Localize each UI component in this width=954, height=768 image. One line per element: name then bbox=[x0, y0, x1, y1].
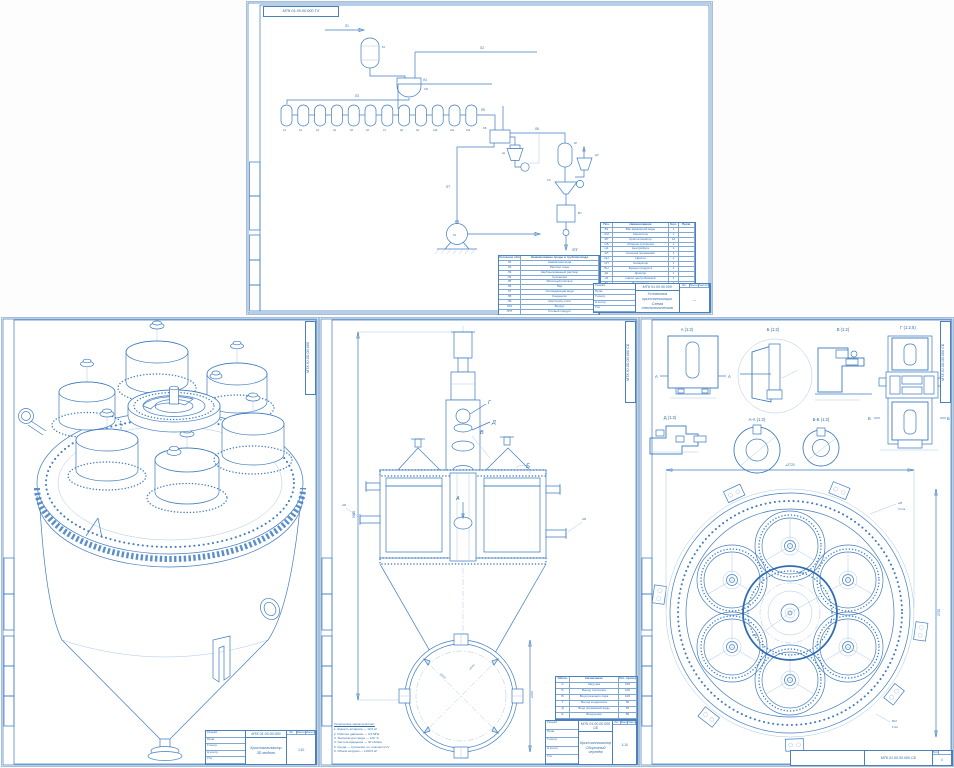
holes-count: 72 отв. bbox=[898, 508, 906, 511]
revision-cells bbox=[791, 751, 865, 765]
svg-text:А4: А4 bbox=[333, 129, 337, 132]
crystallizer-front-view: Г Д В bbox=[342, 326, 587, 758]
collector-box-icon bbox=[490, 130, 510, 143]
edge-document-code: МТК 01.00.00.000 СБ bbox=[625, 321, 636, 403]
separator-icon bbox=[555, 182, 577, 194]
nozzle-dim-right: ⌀50 bbox=[582, 518, 587, 521]
title-block-title: Установка кристаллизации Схема технологи… bbox=[636, 291, 679, 312]
sheet-flow-diagram: Л1 Л2 Л3 Л4 Л5 Л6 ЛТ ЛПГ Б1 СМ СБ Ц1 КЛ … bbox=[247, 2, 712, 314]
process-flow-diagram: Л1 Л2 Л3 Л4 Л5 Л6 ЛТ ЛПГ Б1 СМ СБ Ц1 КЛ … bbox=[281, 24, 599, 254]
technical-notes: Технические характеристики: 1. Ёмкость а… bbox=[334, 722, 454, 753]
title-block: Разраб.Пров.Т.контр.Н.контр.Утв. МТК 01.… bbox=[593, 283, 711, 313]
drum-1 bbox=[118, 321, 196, 402]
svg-text:А12: А12 bbox=[466, 129, 471, 132]
drum-5 bbox=[147, 429, 227, 513]
title-block-info: Лит.МассаМасштаб 1:10 bbox=[287, 731, 316, 764]
ring-dim: ⌀920 bbox=[752, 634, 758, 637]
stream-label-l6: Л6 bbox=[535, 127, 539, 131]
crystallizer-row bbox=[281, 105, 477, 126]
svg-text:А10: А10 bbox=[433, 129, 438, 132]
title-block-roles: Разраб.Пров.Т.контр.Н.контр.Утв. bbox=[546, 721, 579, 764]
svg-text:А2: А2 bbox=[299, 129, 303, 132]
title-block-roles: Разраб.Пров.Т.контр.Н.контр.Утв. bbox=[594, 284, 636, 312]
stream-label-lpg: ЛПГ bbox=[572, 248, 578, 252]
title-block-info: Лит.МассаМасштаб 1:10 bbox=[613, 721, 637, 764]
detail-view-b bbox=[738, 339, 812, 413]
section-mark-b-left: Б bbox=[868, 416, 871, 421]
cover-plan-view bbox=[652, 469, 937, 751]
view-letter-v: В bbox=[480, 430, 484, 436]
detail-view-d bbox=[650, 426, 706, 454]
edge-document-code: МТК 01.00.00.000 bbox=[305, 321, 316, 395]
svg-text:А1: А1 bbox=[283, 129, 287, 132]
title-block-code: МТК 01.00.00.000 СБ bbox=[865, 751, 932, 765]
edge-document-code: МТК 01.00.00.000 СБ bbox=[940, 321, 951, 403]
corner-document-code: МТК 01.00.00.000 ТХ bbox=[263, 6, 339, 17]
drawing-workspace: Л1 Л2 Л3 Л4 Л5 Л6 ЛТ ЛПГ Б1 СМ СБ Ц1 КЛ … bbox=[0, 0, 954, 768]
stream-label-l5: Л5 bbox=[481, 108, 485, 112]
detail-g-label: Г (1:2.5) bbox=[900, 325, 916, 330]
sight-port-icon bbox=[257, 595, 284, 623]
svg-text:А7: А7 bbox=[383, 129, 387, 132]
eq-label-collector: СБ bbox=[483, 127, 487, 130]
title-block-title: Кристаллизатор Сборочный чертёж bbox=[579, 732, 613, 764]
sheet-iso-view: МТК 01.00.00.000 Разраб.Пров.Т.контр.Н.к… bbox=[2, 318, 318, 766]
stream-label-l1: Л1 bbox=[345, 24, 349, 28]
plan-dim-right: 2720 bbox=[937, 609, 941, 616]
svg-text:А6: А6 bbox=[366, 129, 370, 132]
sheet-number-cell: Лист 4 bbox=[933, 751, 952, 765]
section-view-bb bbox=[803, 428, 839, 466]
stream-label-l2: Л2 bbox=[480, 46, 484, 50]
eq-label-cyclone: Ц1 bbox=[502, 152, 506, 155]
detail-b-label: Б (1:2) bbox=[767, 327, 780, 332]
section-view-aa bbox=[734, 425, 780, 473]
section-mark-a-left: А bbox=[655, 374, 658, 379]
continuation-title-block: МТК 01.00.00.000 СБ Лист 4 bbox=[790, 750, 953, 766]
view-letter-d: Д bbox=[491, 420, 496, 426]
svg-text:А9: А9 bbox=[416, 129, 420, 132]
lug-left bbox=[86, 518, 102, 538]
detail-view-v bbox=[815, 348, 872, 400]
drive-assembly bbox=[446, 332, 490, 488]
plan-height-dim: ⌀2720 bbox=[531, 691, 534, 698]
pump-icon bbox=[435, 224, 540, 255]
feed-tank-icon bbox=[361, 38, 379, 68]
view-letter-g: Г bbox=[488, 400, 492, 406]
legend-table: Условное обозначениеНаименование среды в… bbox=[498, 255, 600, 315]
svg-text:А11: А11 bbox=[450, 129, 455, 132]
equipment-table: Поз.НаименованиеКол.Прим. Б1Бак аммиачно… bbox=[600, 222, 696, 284]
nozzle-table: Обозн.НазначениеУсл. проход АЗагрузка150… bbox=[555, 676, 638, 720]
cyclone-icon bbox=[507, 145, 529, 171]
crystallizer-iso-drawing bbox=[19, 321, 304, 761]
title-block: Разраб.Пров.Т.контр.Н.контр.Утв. МТК 01.… bbox=[205, 730, 317, 765]
view-letter-a: А bbox=[455, 496, 460, 502]
view-letter-b: Б bbox=[526, 464, 530, 470]
title-block-code: МТК 01.00.00.000 bbox=[246, 731, 287, 738]
height-dim-label: 5960 bbox=[352, 511, 356, 518]
eq-label-column: КЛ bbox=[574, 142, 577, 145]
title-block-title: Кристаллизатор 3D модель bbox=[246, 738, 287, 764]
bunker-icon bbox=[557, 205, 575, 222]
section-aa-label: А-А (1:2) bbox=[749, 417, 766, 422]
bolts-dim: М24 bbox=[892, 720, 897, 723]
eq-label-separator: СП bbox=[547, 179, 551, 182]
detail-a-label: А (1:2) bbox=[681, 327, 694, 332]
drum-opening-bottom bbox=[755, 645, 825, 715]
stream-label-l3: Л3 bbox=[355, 94, 359, 98]
section-mark-a-right: А bbox=[728, 374, 731, 379]
cyclone2-icon bbox=[575, 147, 592, 188]
eq-label-bunker: БН bbox=[578, 212, 582, 215]
detail-v-label: В (1:2) bbox=[837, 327, 850, 332]
vessel-position-labels: А1 А2 А3 А4 А5 А6 А7 А8 А9 А10 А11 А12 bbox=[283, 129, 471, 132]
holes-dim: ⌀25 bbox=[898, 502, 903, 505]
title-block: Разраб.Пров.Т.контр.Н.контр.Утв. МТК 01.… bbox=[545, 720, 638, 765]
detail-d-label: Д (1:2) bbox=[664, 415, 677, 420]
title-block-code: МТК 01.00.00.000 bbox=[636, 284, 679, 291]
sheet-front-view: Г Д В bbox=[320, 318, 638, 766]
stream-label-lt: ЛТ bbox=[446, 185, 450, 189]
details-svg: А (1:2) А А Б (1:2) bbox=[640, 318, 953, 766]
bolts-count: 6 отв. bbox=[892, 726, 899, 729]
nozzle-dim-left: ⌀50 bbox=[342, 504, 347, 507]
drum-dim: ⌀670 bbox=[798, 572, 804, 575]
plan-dim-top: ⌀2720 bbox=[785, 463, 794, 467]
stream-label-l4: Л4 bbox=[423, 78, 427, 82]
title-block-code: МТК 01.00.00.000 СБ bbox=[579, 721, 613, 732]
title-block-info: Лит.МассаМасштаб — bbox=[680, 284, 710, 312]
vessel-body bbox=[40, 508, 300, 761]
eq-label-tank: Б1 bbox=[382, 46, 386, 49]
detail-view-g bbox=[874, 336, 946, 450]
detail-view-a bbox=[660, 336, 726, 398]
central-ring bbox=[743, 566, 837, 660]
section-bb-label: Б-Б (1:2) bbox=[813, 417, 830, 422]
support-bracket bbox=[213, 636, 230, 682]
sheet-details: А (1:2) А А Б (1:2) bbox=[640, 318, 953, 766]
mixer-icon bbox=[397, 78, 421, 97]
svg-text:А3: А3 bbox=[316, 129, 320, 132]
wash-column-icon bbox=[558, 143, 572, 167]
svg-text:А8: А8 bbox=[400, 129, 404, 132]
svg-text:А5: А5 bbox=[350, 129, 354, 132]
title-block-roles: Разраб.Пров.Т.контр.Н.контр.Утв. bbox=[206, 731, 246, 764]
iso-view-svg bbox=[2, 318, 318, 766]
eq-label-cyclone2: ЦН bbox=[595, 154, 599, 157]
side-nozzle-left-icon bbox=[19, 409, 47, 436]
section-mark-b-right: Б bbox=[947, 416, 950, 421]
eq-label-mixer: СМ bbox=[424, 88, 428, 91]
